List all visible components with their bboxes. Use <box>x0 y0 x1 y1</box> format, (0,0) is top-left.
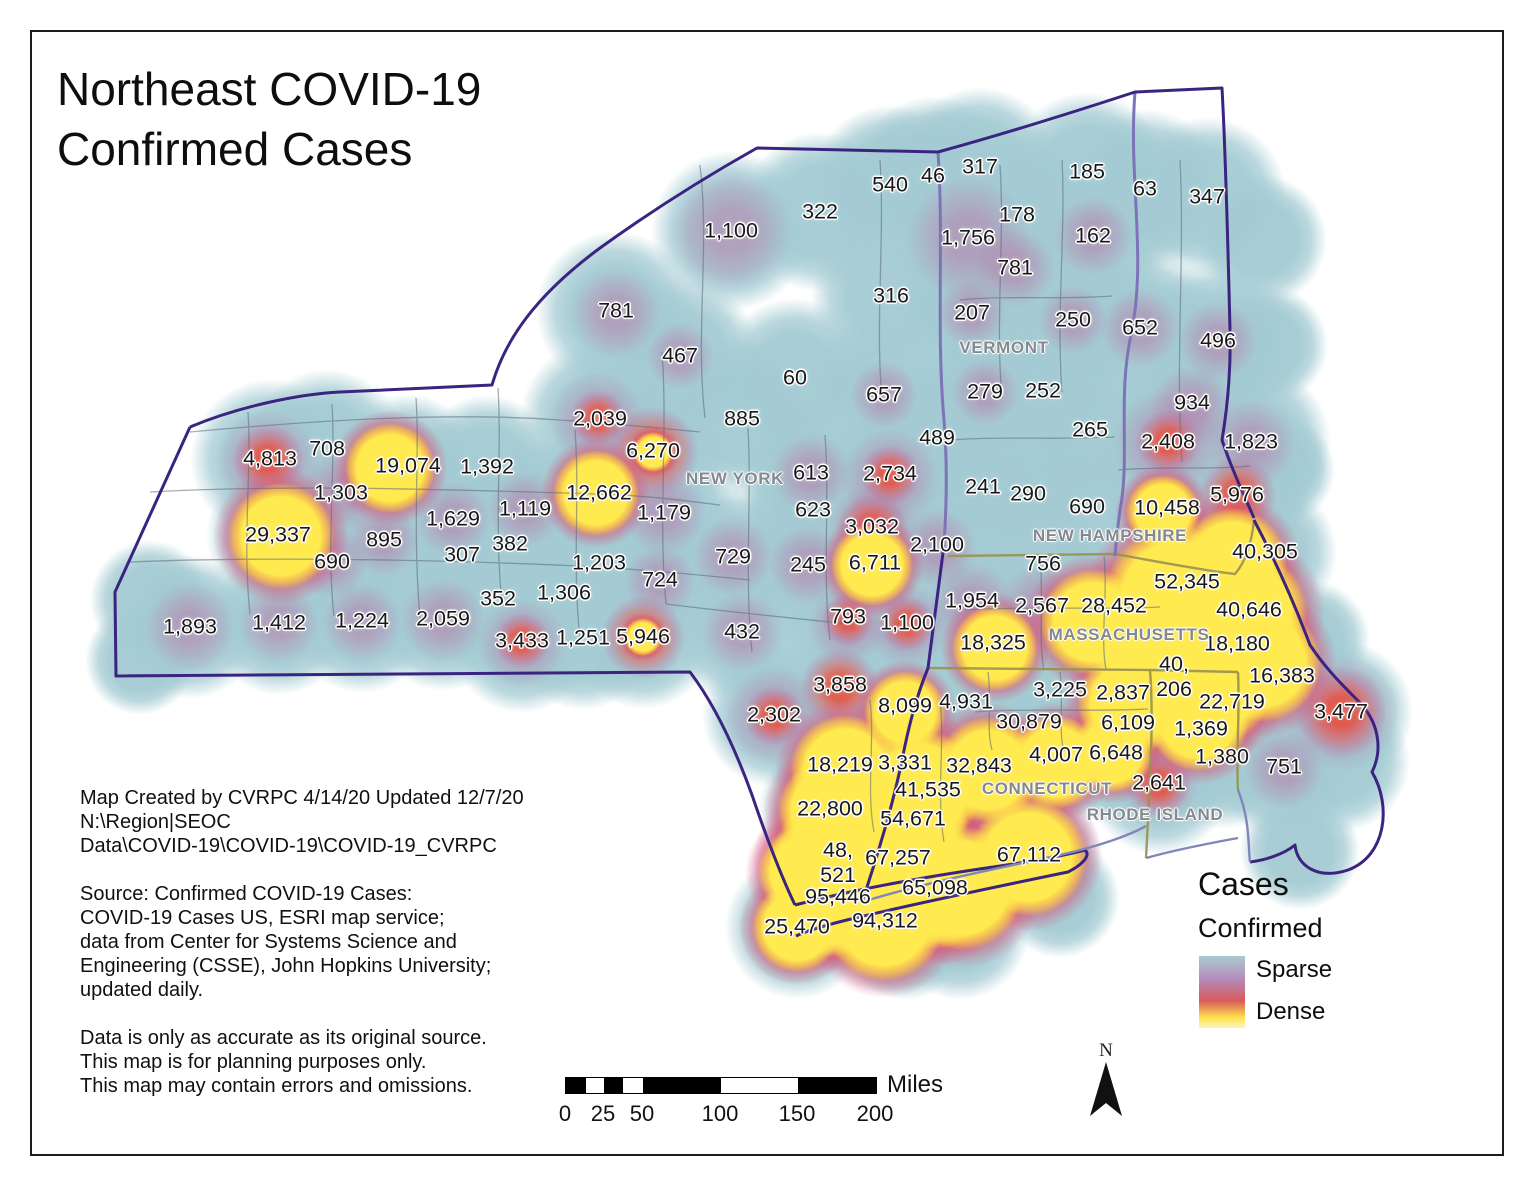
case-count-label: 28,452 <box>1081 594 1147 619</box>
case-count-label: 322 <box>802 200 838 225</box>
credits-line: Map Created by CVRPC 4/14/20 Updated 12/… <box>80 786 524 810</box>
case-count-label: 6,109 <box>1101 711 1155 736</box>
case-count-label: 32,843 <box>946 754 1012 779</box>
scale-bar-segments <box>565 1077 877 1094</box>
credits-source: Source: Confirmed COVID-19 Cases:COVID-1… <box>80 882 524 1002</box>
case-count-label: 1,954 <box>945 589 999 614</box>
case-count-label: 1,251 <box>556 626 610 651</box>
case-count-label: 290 <box>1010 482 1046 507</box>
case-count-label: 1,369 <box>1174 717 1228 742</box>
case-count-label: 6,270 <box>626 439 680 464</box>
case-count-label: 613 <box>793 461 829 486</box>
credits-line: Data is only as accurate as its original… <box>80 1026 524 1050</box>
case-count-label: 40,646 <box>1216 598 1282 623</box>
case-count-label: 2,059 <box>416 607 470 632</box>
case-count-label: 5,946 <box>616 625 670 650</box>
case-count-label: 690 <box>314 550 350 575</box>
credits-block: Map Created by CVRPC 4/14/20 Updated 12/… <box>80 786 524 1122</box>
case-count-label: 708 <box>309 437 345 462</box>
north-arrow-icon <box>1084 1062 1128 1120</box>
case-count-label: 18,180 <box>1204 632 1270 657</box>
case-count-label: 18,219 <box>807 753 873 778</box>
case-count-label: 54,671 <box>880 807 946 832</box>
case-count-label: 793 <box>830 605 866 630</box>
case-count-label: 1,100 <box>880 611 934 636</box>
case-count-label: 895 <box>366 528 402 553</box>
legend-subtitle: Confirmed <box>1198 913 1323 944</box>
case-count-label: 781 <box>997 256 1033 281</box>
case-count-label: 241 <box>965 475 1001 500</box>
state-label: NEW YORK <box>686 469 784 489</box>
case-count-label: 252 <box>1025 379 1061 404</box>
scale-bar-segment <box>798 1078 876 1093</box>
page-title: Northeast COVID-19 Confirmed Cases <box>57 60 481 180</box>
case-count-label: 265 <box>1072 418 1108 443</box>
scale-bar-segment <box>566 1078 586 1093</box>
case-count-label: 1,203 <box>572 551 626 576</box>
state-label: NEW HAMPSHIRE <box>1033 526 1187 546</box>
case-count-label: 4,813 <box>243 447 297 472</box>
case-count-label: 1,224 <box>335 609 389 634</box>
credits-created: Map Created by CVRPC 4/14/20 Updated 12/… <box>80 786 524 858</box>
case-count-label: 652 <box>1122 316 1158 341</box>
scale-tick-label: 0 <box>559 1101 571 1127</box>
scale-tick-label: 25 <box>591 1101 615 1127</box>
case-count-label: 2,567 <box>1015 594 1069 619</box>
scale-bar: 02550100150200 Miles <box>565 1077 877 1094</box>
case-count-label: 67,257 <box>865 846 931 871</box>
case-count-label: 1,380 <box>1195 745 1249 770</box>
case-count-label: 4,931 <box>939 690 993 715</box>
case-count-label: 1,629 <box>426 507 480 532</box>
case-count-label: 3,225 <box>1033 678 1087 703</box>
case-count-label: 8,099 <box>878 694 932 719</box>
scale-tick-label: 50 <box>630 1101 654 1127</box>
scale-tick-label: 150 <box>779 1101 816 1127</box>
credits-line: This map may contain errors and omission… <box>80 1074 524 1098</box>
case-count-label: 1,412 <box>252 611 306 636</box>
case-count-label: 2,641 <box>1132 771 1186 796</box>
case-count-label: 1,893 <box>163 615 217 640</box>
credits-line: Engineering (CSSE), John Hopkins Univers… <box>80 954 524 978</box>
credits-disclaimer: Data is only as accurate as its original… <box>80 1026 524 1098</box>
state-label: VERMONT <box>959 338 1048 358</box>
legend-gradient-swatch <box>1199 956 1245 1028</box>
scale-tick-label: 200 <box>857 1101 894 1127</box>
case-count-label: 3,331 <box>878 751 932 776</box>
case-count-label: 16,383 <box>1249 664 1315 689</box>
case-count-label: 432 <box>724 620 760 645</box>
north-arrow-label: N <box>1084 1040 1128 1062</box>
case-count-label: 60 <box>783 366 807 391</box>
case-count-label: 781 <box>598 299 634 324</box>
case-count-label: 1,823 <box>1224 430 1278 455</box>
case-count-label: 489 <box>919 426 955 451</box>
case-count-label: 25,470 <box>764 915 830 940</box>
case-count-label: 3,858 <box>813 673 867 698</box>
map-document: Northeast COVID-19 Confirmed Cases <box>0 0 1536 1187</box>
case-count-label: 279 <box>967 380 1003 405</box>
case-count-label: 885 <box>724 407 760 432</box>
scale-bar-segment <box>721 1078 798 1093</box>
case-count-label: 245 <box>790 553 826 578</box>
case-count-label: 1,303 <box>314 481 368 506</box>
case-count-label: 724 <box>642 568 678 593</box>
case-count-label: 3,477 <box>1314 700 1368 725</box>
case-count-label: 22,800 <box>797 797 863 822</box>
state-label: RHODE ISLAND <box>1087 805 1224 825</box>
case-count-label: 1,392 <box>460 455 514 480</box>
case-count-label: 250 <box>1055 308 1091 333</box>
case-count-label: 540 <box>872 173 908 198</box>
case-count-label: 19,074 <box>375 454 441 479</box>
case-count-label: 2,039 <box>573 407 627 432</box>
case-count-label: 2,837 <box>1096 681 1150 706</box>
case-count-label: 46 <box>921 164 945 189</box>
case-count-label: 352 <box>480 587 516 612</box>
scale-bar-unit: Miles <box>887 1071 943 1099</box>
case-count-label: 307 <box>444 543 480 568</box>
case-count-label: 2,734 <box>863 462 917 487</box>
credits-line: N:\Region|SEOC <box>80 810 524 834</box>
scale-tick-label: 100 <box>702 1101 739 1127</box>
scale-bar-segment <box>604 1078 623 1093</box>
case-count-label: 751 <box>1266 755 1302 780</box>
case-count-label: 467 <box>662 344 698 369</box>
case-count-label: 5,976 <box>1210 483 1264 508</box>
scale-bar-segment <box>623 1078 643 1093</box>
case-count-label: 1,756 <box>941 226 995 251</box>
case-count-label: 3,433 <box>495 629 549 654</box>
case-count-label: 1,179 <box>637 501 691 526</box>
case-count-label: 29,337 <box>245 523 311 548</box>
credits-line: updated daily. <box>80 978 524 1002</box>
legend-title: Cases <box>1198 866 1323 903</box>
legend-label-dense: Dense <box>1256 998 1325 1026</box>
title-line2: Confirmed Cases <box>57 123 412 175</box>
case-count-label: 40,305 <box>1232 540 1298 565</box>
scale-bar-segment <box>586 1078 604 1093</box>
case-count-label: 95,446 <box>805 885 871 910</box>
case-count-label: 347 <box>1189 185 1225 210</box>
case-count-label: 67,112 <box>997 843 1061 868</box>
case-count-label: 623 <box>795 498 831 523</box>
case-count-label: 22,719 <box>1199 690 1265 715</box>
case-count-label: 48, 521 <box>820 838 856 888</box>
credits-line: This map is for planning purposes only. <box>80 1050 524 1074</box>
case-count-label: 2,302 <box>747 703 801 728</box>
scale-bar-segment <box>643 1078 721 1093</box>
state-label: CONNECTICUT <box>982 779 1112 799</box>
credits-line: Data\COVID-19\COVID-19\COVID-19_CVRPC <box>80 834 524 858</box>
case-count-label: 2,100 <box>910 533 964 558</box>
case-count-label: 185 <box>1069 160 1105 185</box>
case-count-label: 41,535 <box>895 778 961 803</box>
case-count-label: 934 <box>1174 391 1210 416</box>
case-count-label: 6,648 <box>1089 741 1143 766</box>
case-count-label: 178 <box>999 203 1035 228</box>
case-count-label: 1,119 <box>499 497 551 522</box>
case-count-label: 94,312 <box>852 909 918 934</box>
case-count-label: 496 <box>1200 329 1236 354</box>
case-count-label: 52,345 <box>1154 570 1220 595</box>
case-count-label: 2,408 <box>1141 430 1195 455</box>
case-count-label: 657 <box>866 383 902 408</box>
case-count-label: 756 <box>1025 552 1061 577</box>
case-count-label: 1,100 <box>704 219 758 244</box>
case-count-label: 1,306 <box>537 581 591 606</box>
case-count-label: 65,098 <box>902 876 968 901</box>
credits-line: data from Center for Systems Science and <box>80 930 524 954</box>
case-count-label: 729 <box>715 545 751 570</box>
case-count-label: 10,458 <box>1134 496 1200 521</box>
case-count-label: 30,879 <box>996 710 1062 735</box>
case-count-label: 6,711 <box>849 551 901 576</box>
north-arrow: N <box>1084 1040 1128 1120</box>
case-count-label: 317 <box>962 155 998 180</box>
case-count-label: 690 <box>1069 495 1105 520</box>
case-count-label: 4,007 <box>1029 743 1083 768</box>
case-count-label: 3,032 <box>845 515 899 540</box>
legend-label-sparse: Sparse <box>1256 956 1332 984</box>
case-count-label: 12,662 <box>566 481 632 506</box>
case-count-label: 382 <box>492 532 528 557</box>
state-label: MASSACHUSETTS <box>1049 625 1210 645</box>
case-count-label: 63 <box>1133 177 1157 202</box>
case-count-label: 162 <box>1075 224 1111 249</box>
legend: Cases Confirmed Sparse Dense <box>1198 866 1323 1036</box>
credits-line: COVID-19 Cases US, ESRI map service; <box>80 906 524 930</box>
case-count-label: 18,325 <box>960 631 1026 656</box>
title-line1: Northeast COVID-19 <box>57 63 481 115</box>
credits-line: Source: Confirmed COVID-19 Cases: <box>80 882 524 906</box>
case-count-label: 207 <box>954 301 990 326</box>
case-count-label: 40, 206 <box>1156 652 1192 702</box>
case-count-label: 316 <box>873 284 909 309</box>
